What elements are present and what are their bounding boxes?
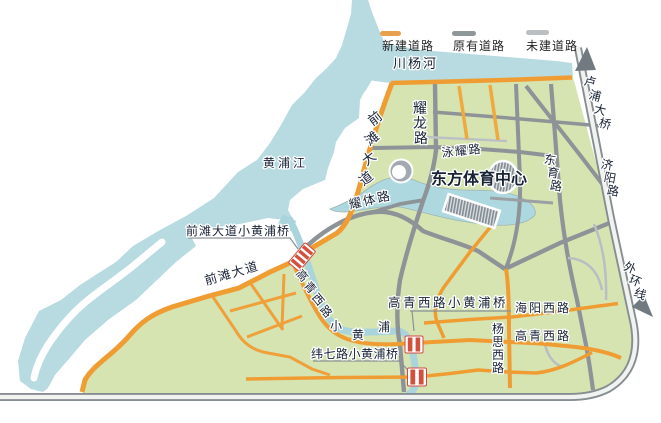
- svg-text:耀: 耀: [413, 100, 427, 116]
- svg-text:原有道路: 原有道路: [453, 38, 505, 53]
- svg-text:高青西路小黄浦桥: 高青西路小黄浦桥: [388, 295, 508, 310]
- svg-text:黄浦江: 黄浦江: [263, 156, 308, 170]
- svg-text:浦: 浦: [378, 320, 390, 334]
- svg-text:路: 路: [606, 182, 620, 199]
- svg-text:路: 路: [549, 177, 563, 194]
- svg-text:前滩大道小黄浦桥: 前滩大道小黄浦桥: [186, 223, 290, 238]
- svg-text:西: 西: [492, 348, 504, 362]
- svg-text:小: 小: [330, 319, 342, 333]
- svg-text:黄: 黄: [352, 328, 364, 342]
- svg-text:龙: 龙: [413, 115, 427, 131]
- svg-text:高青西路: 高青西路: [515, 328, 571, 343]
- svg-text:路: 路: [492, 360, 504, 375]
- svg-text:东方体育中心: 东方体育中心: [431, 169, 527, 188]
- svg-text:思: 思: [492, 335, 504, 349]
- svg-text:杨: 杨: [492, 321, 504, 336]
- svg-text:川杨河: 川杨河: [393, 56, 438, 71]
- svg-text:未建道路: 未建道路: [526, 38, 578, 53]
- svg-text:海阳西路: 海阳西路: [515, 300, 571, 315]
- svg-text:新建道路: 新建道路: [382, 38, 434, 53]
- svg-text:纬七路小黄浦桥: 纬七路小黄浦桥: [311, 346, 399, 361]
- svg-text:路: 路: [414, 130, 428, 146]
